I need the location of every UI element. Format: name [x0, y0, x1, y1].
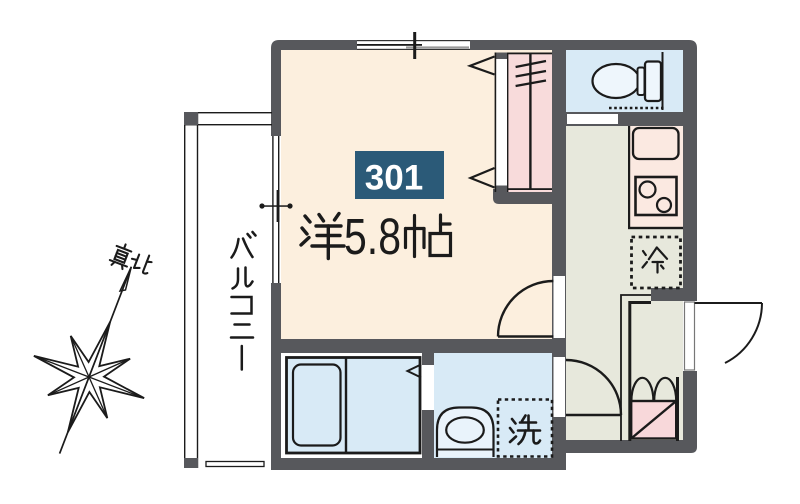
svg-text:5.8: 5.8	[344, 208, 401, 265]
svg-text:301: 301	[365, 159, 423, 198]
